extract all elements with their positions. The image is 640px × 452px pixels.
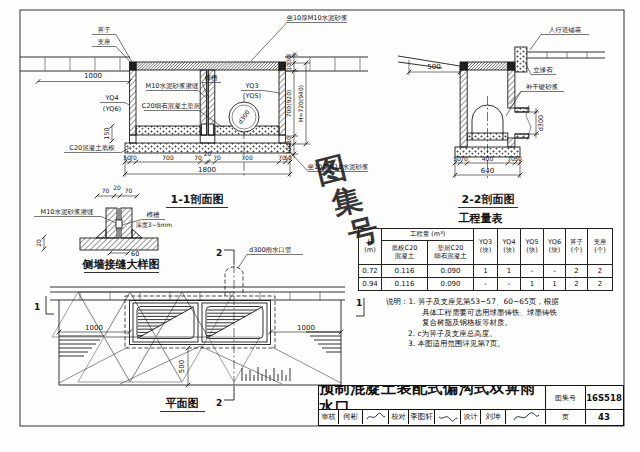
section-2-2: 500 d300 人行道铺装 立缘石 [398,26,605,208]
col-yq6: YQ6(块) [544,229,566,265]
grate-section-22 [467,62,508,70]
dim: 700 [162,154,174,161]
pipe-plan-label: d300雨水口管 [249,246,292,254]
col-h: H(m) [359,229,382,265]
quantity-table: H(m) 工程量 (m³) YQ3(块) YQ4(块) YQ5(块) YQ6(块… [358,228,613,291]
dim: 70 [460,155,468,162]
section-1-1: d300 箅子 支座 坐10厚M10水泥砂浆 1000 M10水泥砂浆灌缝 榫槽… [20,14,369,208]
cushion-layer [136,126,200,135]
col-yq5: YQ5(块) [521,229,544,265]
dim: 30 [285,55,292,63]
tenon-depth-label: 深度3~5mm [136,221,173,229]
curb-label: 立缘石 [533,66,553,74]
col-yq4: YQ4(块) [498,229,521,265]
section-2-marker-top: 2 [216,248,222,258]
plan-title: 平面图 [166,397,199,410]
slab-label: C20混凝土底板 [69,144,115,152]
designer-name: 刘坤 [481,410,506,424]
dim: 50 [514,155,522,162]
atlas-number: 16S518 [586,386,622,409]
dim: 700(920) [285,90,292,118]
note-line: 具体工程需要可选用球墨铸铁、球墨铸铁 [422,308,611,319]
designer-signature [506,410,546,424]
joint-base [80,238,158,250]
dim-1800: 1800 [198,166,216,174]
col-grate: 箅子(个) [566,229,588,265]
dim: 100 [285,143,292,155]
note-line: 2. c为箅子及支座总高度。 [408,329,611,340]
grate-section [136,62,279,70]
dim: 10 [285,63,292,71]
mortar-top-label: 坐10厚M10水泥砂浆 [286,14,348,22]
dim: 70 [125,187,133,194]
dim-20: 20 [35,239,42,247]
grout-label: M10水泥砂浆灌缝 [146,82,199,90]
signature-icon [365,411,387,423]
grate-1 [133,303,198,342]
section-1-marker-right: 1 [356,298,362,308]
dim-640: 640 [481,167,494,175]
sidewalk-label: 人行道铺装 [549,26,582,34]
page-number: 43 [586,410,622,424]
drawing-sheet: d300 箅子 支座 坐10厚M10水泥砂浆 1000 M10水泥砂浆灌缝 榫槽… [0,0,640,452]
joint-grout-label: M10水泥砂浆灌缝 [41,208,94,216]
note-line: 复合树脂及钢格板等材质。 [422,318,611,329]
grate-2 [202,303,267,342]
curb-stone [515,47,527,72]
tenon-label: 榫槽 [205,74,219,82]
support-label: 支座 [98,38,112,46]
wall-yq4 [130,70,136,135]
signature-icon [437,411,459,423]
dim: 20 [113,184,121,191]
grate-support-left [130,62,136,70]
watermark [52,292,260,382]
section-2-marker-bottom: 2 [216,398,222,408]
section-2-2-title: 2-2剖面图 [462,193,515,206]
col-cushion-concrete: 垫层C20细石混凝土 [428,241,474,265]
wall-yq6-label: (YQ6) [103,105,121,113]
joint-detail: M10水泥砂浆灌缝 榫槽 深度3~5mm 20 60 侧墙接缝大样图 [34,208,172,273]
wall-right-lower-22 [508,138,515,147]
dim-150: 150 [103,127,111,139]
wall-left-22 [460,70,467,147]
review-label: 审核 [319,410,339,424]
col-slab-concrete: 底板C20混凝土 [382,241,428,265]
drawing-title: 预制混凝土装配式偏沟式双箅雨水口 [319,386,546,409]
joint-tenon-label: 榫槽 [147,211,161,219]
plan-dim-500: 500 [178,360,186,373]
dim: 70 [194,154,202,161]
proofer-signature [435,410,461,424]
col-yq3: YQ3(块) [474,229,498,265]
design-label: 设计 [461,410,481,424]
table-row: 0.940.1160.090 ––1 122 [359,278,613,291]
tenon-groove [116,220,122,228]
slope-ticks [242,367,290,381]
dim: 70 [129,154,137,161]
grate-label: 箅子 [98,26,112,34]
signature-icon [511,411,541,423]
wall-yq5-label: (YQ5) [243,92,261,100]
dim: 10 [285,136,292,144]
page-label: 页 [546,410,586,424]
quantity-table-title: 工程量表 [358,211,603,226]
dim: 70 [213,154,221,161]
dry-mortar-label: 补干硬砂浆 [526,83,559,91]
dim: 400 [482,155,494,162]
dim-total-height: H=720(940) [297,85,304,122]
dim-60: 60 [131,250,139,258]
wall-yq3-label: YQ3 [244,82,258,90]
note-line: 3. 本图适用范围详见第7页。 [408,339,611,350]
wall-yq4-label: YQ4 [104,94,118,102]
proof-label: 校对 [389,410,409,424]
note-line: 说明：1. 箅子及支座见第53~57、60~65页，根据 [386,297,611,308]
notes: 说明：1. 箅子及支座见第53~57、60~65页，根据 具体工程需要可选用球墨… [386,297,611,350]
section-1-marker-left: 1 [34,302,40,312]
proofer-name: 李图轩 [409,410,435,424]
plan-dim-right: 1000 [297,324,315,332]
atlas-label: 图集号 [546,386,586,409]
dim: 70 [102,187,110,194]
title-block: 预制混凝土装配式偏沟式双箅雨水口 图集号 16S518 审核 何彬 校对 李图轩… [318,385,624,426]
cushion-label: C20细石混凝土垫层 [142,102,201,110]
dim-d300: d300 [537,115,545,132]
section-1-1-title: 1-1剖面图 [171,193,224,206]
reviewer-name: 何彬 [339,410,363,424]
dim-1000: 1000 [84,72,102,80]
reviewer-signature [363,410,389,424]
dim: 20 [204,150,212,157]
dim-500: 500 [427,63,440,71]
col-group-quantity: 工程量 (m³) [382,229,474,241]
col-support: 支座(个) [588,229,613,265]
dim: 700 [241,154,253,161]
joint-detail-title: 侧墙接缝大样图 [82,258,160,271]
table-row: 0.720.1160.090 11– –22 [359,265,613,278]
